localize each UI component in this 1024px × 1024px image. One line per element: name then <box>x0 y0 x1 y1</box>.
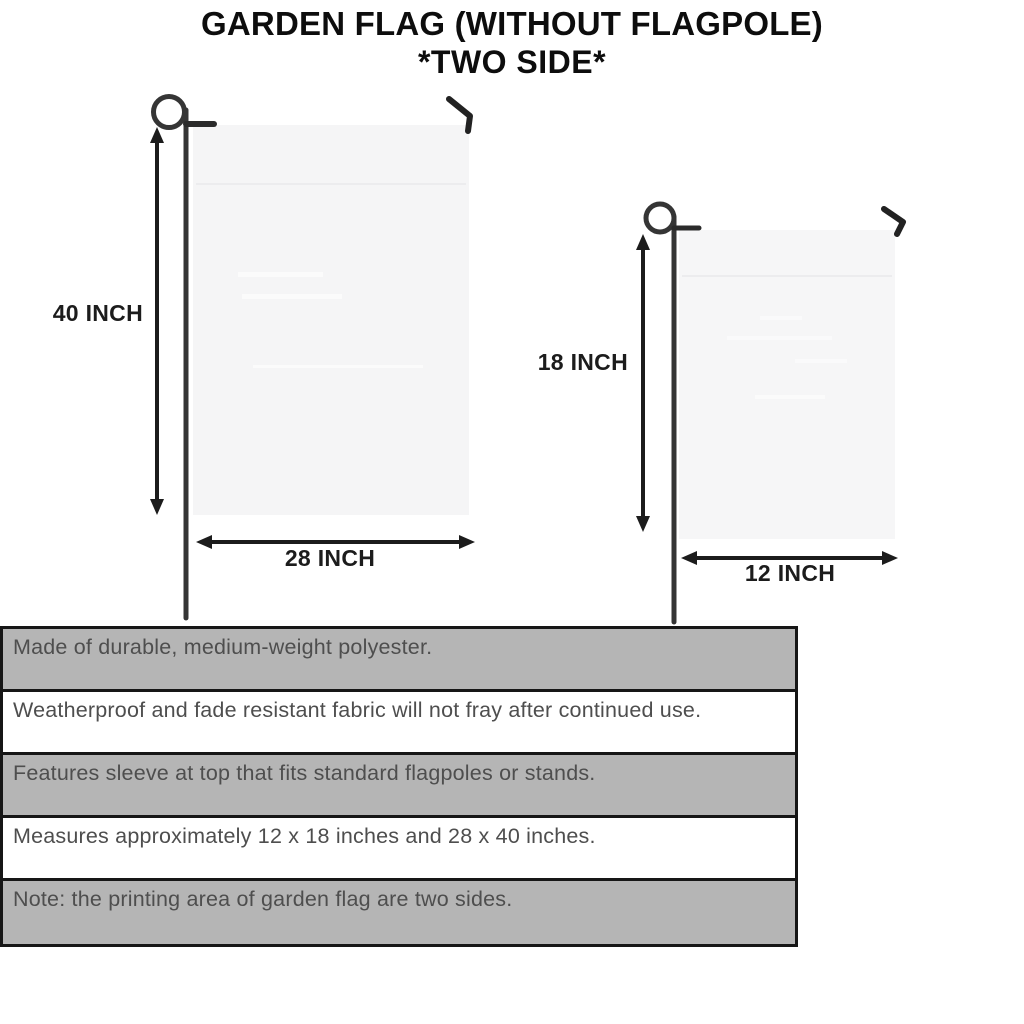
large-flagpole-loop <box>154 97 185 128</box>
feature-row-material: Made of durable, medium-weight polyester… <box>3 629 795 692</box>
garden-flag-infographic: GARDEN FLAG (WITHOUT FLAGPOLE) *TWO SIDE… <box>0 0 1024 1024</box>
small-flag-width-label: 12 INCH <box>690 560 890 587</box>
large-flag-group <box>150 97 475 619</box>
small-flagpole-loop <box>646 204 674 232</box>
feature-row-note: Note: the printing area of garden flag a… <box>3 881 795 944</box>
large-flag-width-label: 28 INCH <box>230 545 430 572</box>
feature-row-sleeve: Features sleeve at top that fits standar… <box>3 755 795 818</box>
features-table: Made of durable, medium-weight polyester… <box>0 626 798 947</box>
large-flag-height-label: 40 INCH <box>23 300 143 327</box>
feature-row-measurements: Measures approximately 12 x 18 inches an… <box>3 818 795 881</box>
large-flag-height-arrow <box>150 127 164 515</box>
size-diagram-canvas <box>0 0 1024 630</box>
feature-row-weatherproof: Weatherproof and fade resistant fabric w… <box>3 692 795 755</box>
small-flag-height-arrow <box>636 234 650 532</box>
small-flag-height-label: 18 INCH <box>508 349 628 376</box>
